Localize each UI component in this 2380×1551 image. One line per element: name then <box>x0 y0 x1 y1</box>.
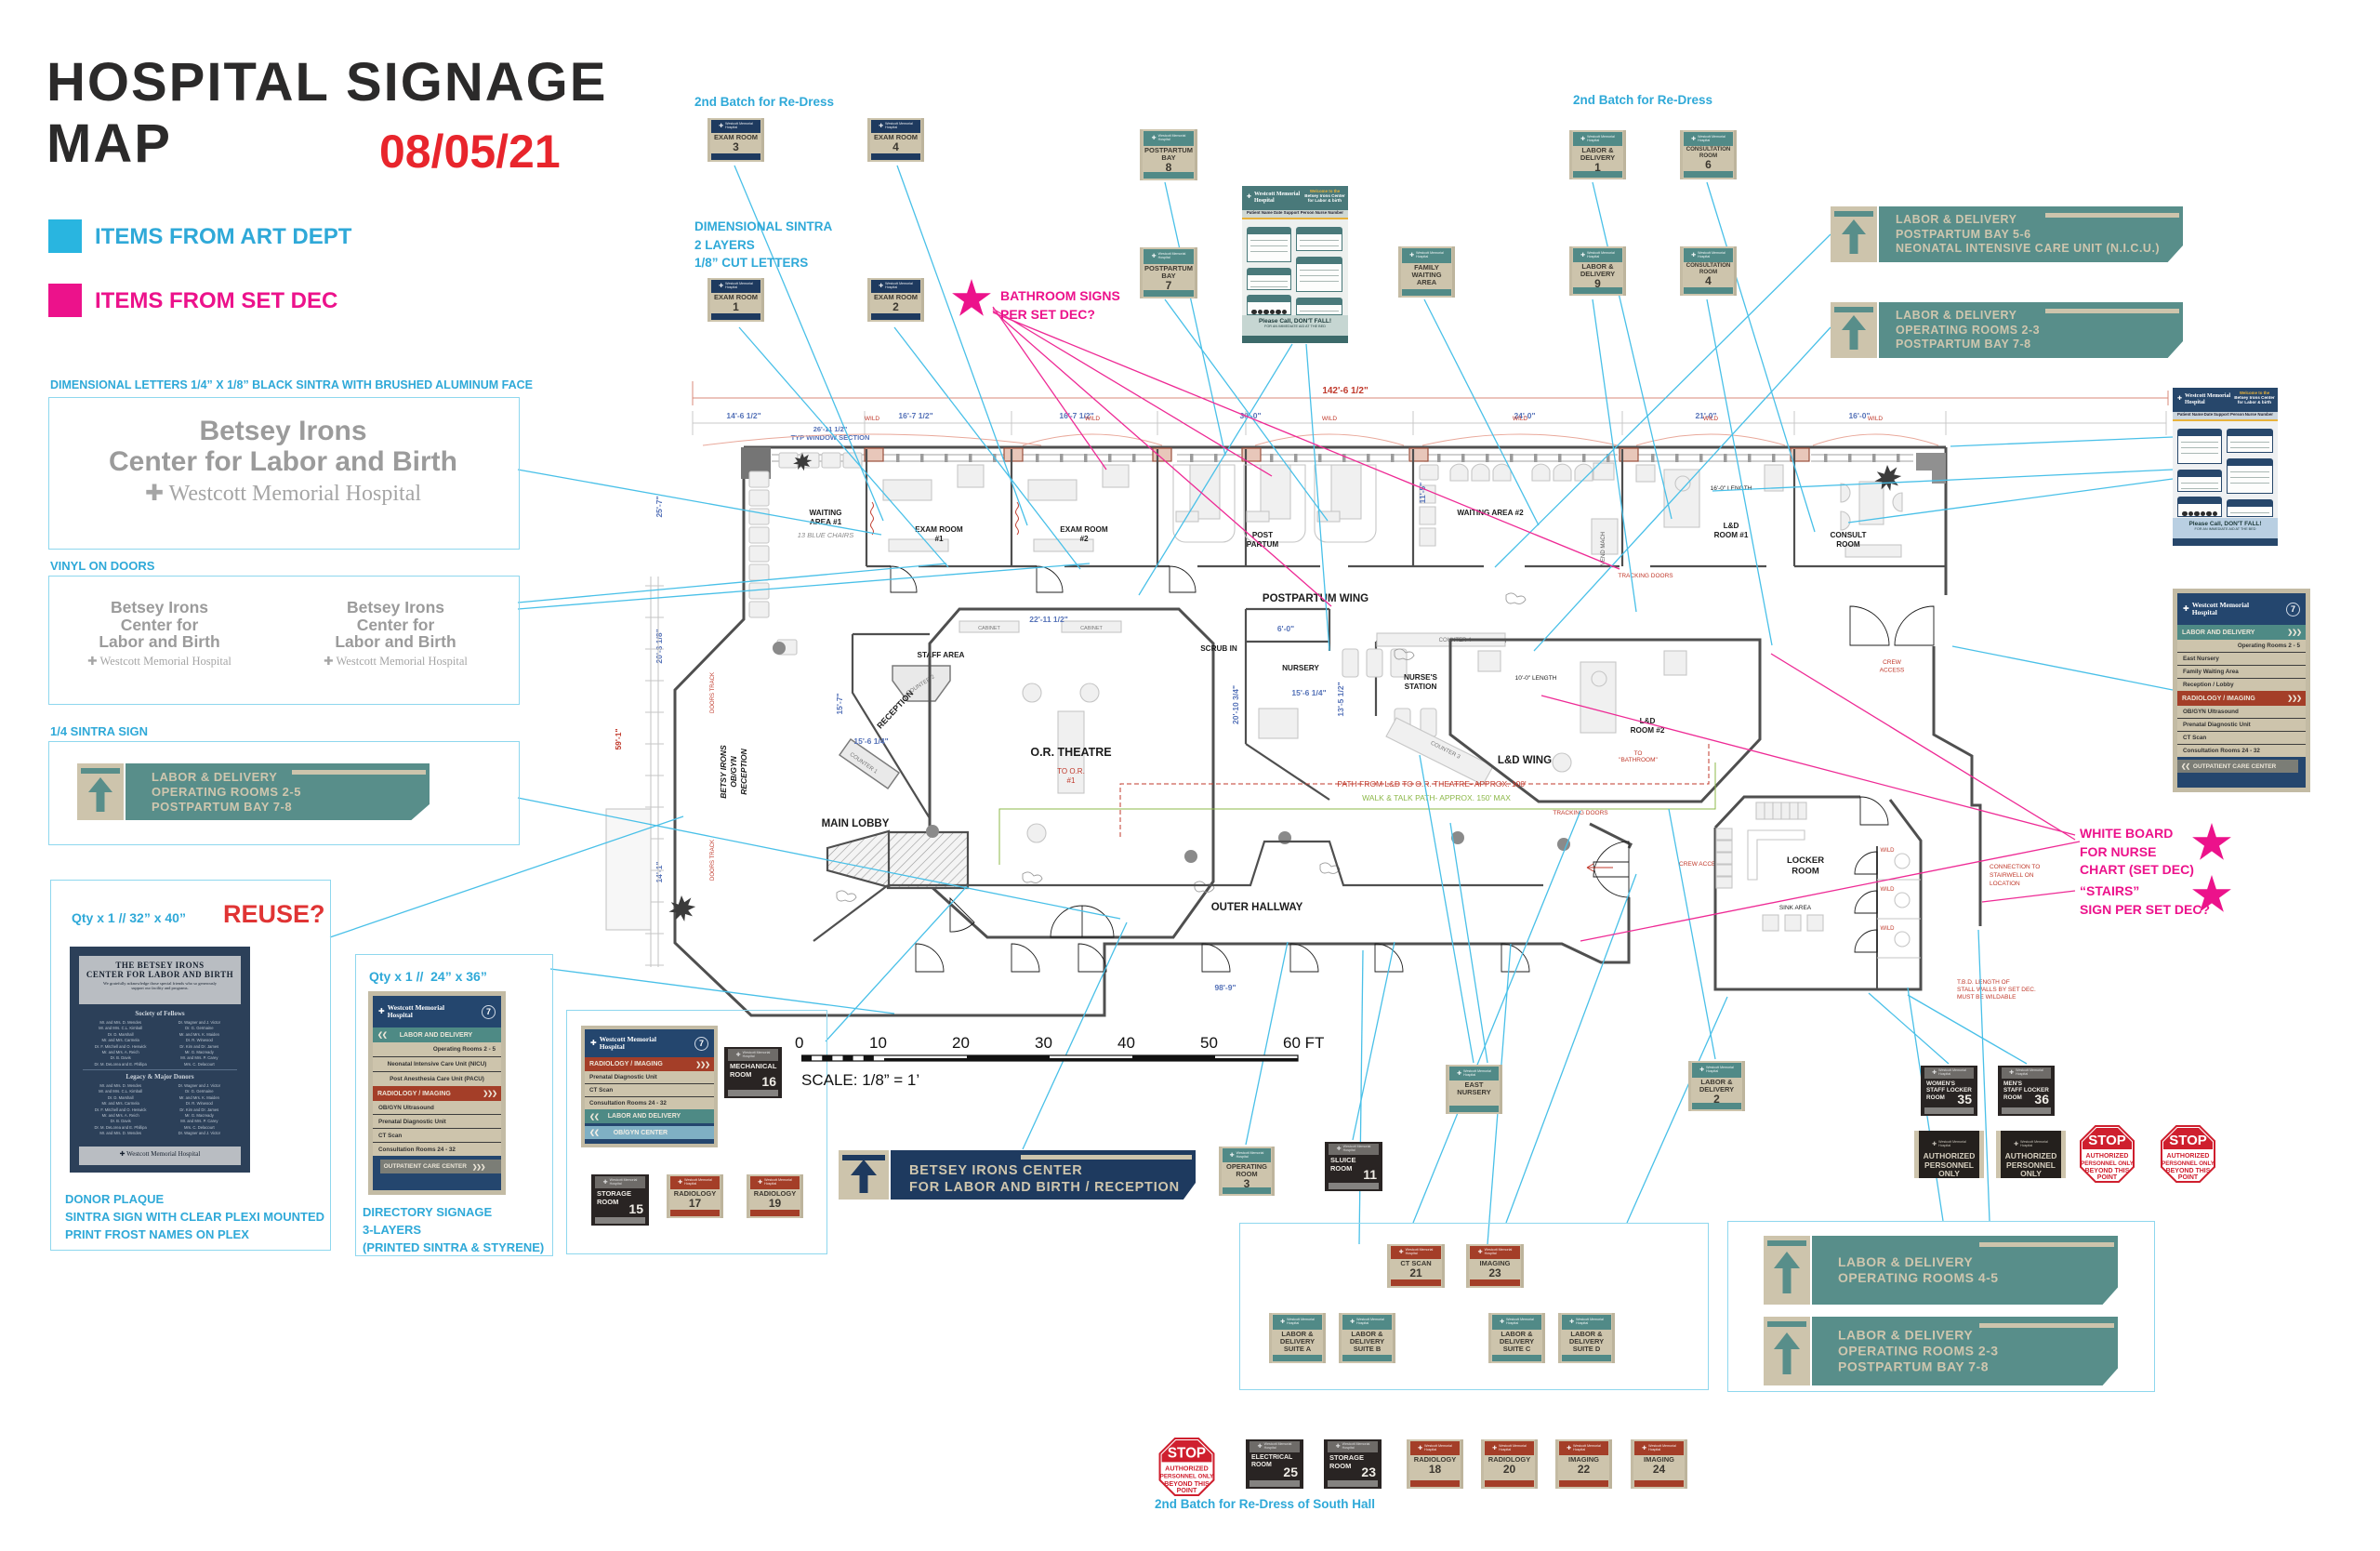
svg-text:13 BLUE CHAIRS: 13 BLUE CHAIRS <box>798 531 853 539</box>
svg-text:T.B.D. LENGTH OF: T.B.D. LENGTH OF <box>1957 979 2010 986</box>
svg-text:15'-6 1/4": 15'-6 1/4" <box>1291 688 1326 697</box>
svg-text:BEYOND THIS: BEYOND THIS <box>2166 1168 2211 1174</box>
svg-text:20'-3 1/8": 20'-3 1/8" <box>654 629 664 663</box>
svg-text:SINK AREA: SINK AREA <box>1779 905 1812 911</box>
svg-text:STAFF AREA: STAFF AREA <box>918 651 965 659</box>
svg-text:EXAM ROOM: EXAM ROOM <box>1060 525 1108 534</box>
svg-text:WILD: WILD <box>1881 926 1896 932</box>
svg-text:15'-6 1/4": 15'-6 1/4" <box>853 736 888 746</box>
svg-text:VEND MACH: VEND MACH <box>1601 532 1606 565</box>
svg-text:14'-6 1/2": 14'-6 1/2" <box>726 411 760 420</box>
svg-text:BETSY IRONS: BETSY IRONS <box>719 745 728 799</box>
svg-text:59'-1": 59'-1" <box>614 728 623 749</box>
svg-text:PERSONNEL ONLY: PERSONNEL ONLY <box>1160 1474 1215 1480</box>
svg-text:#1: #1 <box>1067 776 1076 785</box>
svg-text:CONSULT: CONSULT <box>1831 531 1867 539</box>
svg-text:AUTHORIZED: AUTHORIZED <box>2086 1153 2129 1160</box>
svg-text:STALL WALLS BY SET DEC.: STALL WALLS BY SET DEC. <box>1957 987 2036 993</box>
svg-text:STOP: STOP <box>1168 1445 1206 1461</box>
svg-text:TRACKING DOORS: TRACKING DOORS <box>1553 810 1608 816</box>
svg-text:#2: #2 <box>1079 535 1089 543</box>
svg-text:6'-0": 6'-0" <box>1277 624 1294 633</box>
svg-text:TO O.R.: TO O.R. <box>1057 767 1085 775</box>
svg-text:11'-5": 11'-5" <box>1418 483 1427 504</box>
svg-text:LOCATION: LOCATION <box>1990 881 2020 887</box>
svg-text:TO: TO <box>1634 750 1643 757</box>
svg-text:AUTHORIZED: AUTHORIZED <box>1165 1465 1209 1473</box>
svg-text:MUST BE WILDABLE: MUST BE WILDABLE <box>1957 994 2016 1001</box>
svg-text:POST: POST <box>1252 531 1273 539</box>
svg-text:WILD: WILD <box>1322 416 1338 422</box>
svg-text:TRACKING DOORS: TRACKING DOORS <box>1618 573 1673 579</box>
svg-text:POINT: POINT <box>1177 1487 1197 1494</box>
svg-text:ROOM #1: ROOM #1 <box>1714 531 1749 539</box>
svg-text:STATION: STATION <box>1405 683 1437 691</box>
svg-text:WALK & TALK PATH- APPROX. 150': WALK & TALK PATH- APPROX. 150' MAX <box>1362 793 1511 802</box>
svg-text:BEYOND THIS: BEYOND THIS <box>2085 1168 2130 1174</box>
svg-text:OUTER HALLWAY: OUTER HALLWAY <box>1211 902 1303 913</box>
svg-text:14'-1": 14'-1" <box>654 861 664 882</box>
svg-text:PERSONNEL ONLY: PERSONNEL ONLY <box>2081 1160 2135 1167</box>
svg-text:"BATHROOM": "BATHROOM" <box>1619 757 1658 763</box>
svg-text:O.R. THEATRE: O.R. THEATRE <box>1030 746 1111 759</box>
svg-text:CREW: CREW <box>1883 659 1902 666</box>
svg-text:POINT: POINT <box>2097 1174 2118 1181</box>
svg-text:NURSE'S: NURSE'S <box>1404 673 1438 682</box>
svg-text:SCRUB IN: SCRUB IN <box>1200 644 1237 653</box>
svg-text:RECEPTION: RECEPTION <box>739 748 748 794</box>
svg-text:DOORS TRACK: DOORS TRACK <box>710 840 716 881</box>
svg-text:CONNECTION TO: CONNECTION TO <box>1990 864 2040 870</box>
svg-text:OB/GYN: OB/GYN <box>729 755 738 787</box>
svg-text:10'-0" LENGTH: 10'-0" LENGTH <box>1515 675 1557 682</box>
svg-text:WILD: WILD <box>1513 416 1528 422</box>
svg-text:STAIRWELL ON: STAIRWELL ON <box>1990 872 2034 879</box>
svg-text:WAITING: WAITING <box>809 509 841 517</box>
svg-text:STOP: STOP <box>2088 1133 2126 1148</box>
svg-text:20'-10 3/4": 20'-10 3/4" <box>1231 685 1240 724</box>
svg-text:L&D WING: L&D WING <box>1498 755 1552 766</box>
svg-text:ROOM: ROOM <box>1792 867 1819 877</box>
svg-text:25'-7": 25'-7" <box>654 496 664 517</box>
svg-text:WILD: WILD <box>1881 887 1896 893</box>
svg-text:16'-7 1/2": 16'-7 1/2" <box>898 411 932 420</box>
svg-text:AUTHORIZED: AUTHORIZED <box>2167 1153 2210 1160</box>
svg-text:ROOM #2: ROOM #2 <box>1631 726 1665 735</box>
svg-text:ACCESS: ACCESS <box>1880 668 1905 674</box>
svg-text:LOCKER: LOCKER <box>1787 855 1824 866</box>
svg-text:EXAM ROOM: EXAM ROOM <box>915 525 963 534</box>
svg-text:PATH FROM L&D TO O.R. THEATRE-: PATH FROM L&D TO O.R. THEATRE- APPROX. 1… <box>1337 779 1527 789</box>
svg-text:WILD: WILD <box>1703 416 1719 422</box>
svg-text:POSTPARTUM WING: POSTPARTUM WING <box>1263 593 1368 604</box>
svg-text:CABINET: CABINET <box>978 626 1000 631</box>
svg-text:WILD: WILD <box>1085 416 1101 422</box>
svg-text:CABINET: CABINET <box>1080 626 1103 631</box>
svg-text:DOORS TRACK: DOORS TRACK <box>710 672 716 713</box>
svg-text:PERSONNEL ONLY: PERSONNEL ONLY <box>2162 1160 2215 1167</box>
svg-text:STOP: STOP <box>2169 1133 2207 1148</box>
svg-text:98'-9": 98'-9" <box>1214 983 1236 992</box>
svg-text:POINT: POINT <box>2178 1174 2199 1181</box>
svg-text:NURSERY: NURSERY <box>1282 664 1319 672</box>
svg-text:ROOM: ROOM <box>1836 540 1860 549</box>
svg-text:15'-7": 15'-7" <box>835 693 844 714</box>
svg-text:WILD: WILD <box>865 416 880 422</box>
svg-text:142'-6 1/2": 142'-6 1/2" <box>1322 386 1368 396</box>
svg-text:PARTUM: PARTUM <box>1247 540 1279 549</box>
svg-text:L&D: L&D <box>1724 522 1739 530</box>
svg-text:L&D: L&D <box>1640 717 1656 725</box>
svg-text:MAIN LOBBY: MAIN LOBBY <box>822 818 890 829</box>
svg-text:22'-11 1/2": 22'-11 1/2" <box>1029 615 1068 624</box>
svg-text:#1: #1 <box>934 535 944 543</box>
svg-text:WILD: WILD <box>1881 848 1896 854</box>
svg-text:13'-5 1/2": 13'-5 1/2" <box>1336 682 1345 716</box>
svg-text:WILD: WILD <box>1868 416 1884 422</box>
